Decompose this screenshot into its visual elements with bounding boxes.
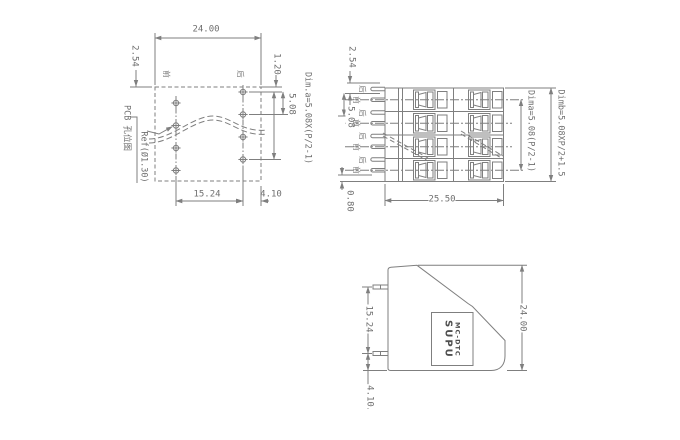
dim-pcb-hole-span: 15.24 bbox=[193, 191, 220, 200]
dim-pcb-edge-to-first-hole: 1.20 bbox=[272, 53, 281, 75]
dim-pcb-dim-a: Dim.a=5.08X(P/2-1) bbox=[303, 72, 312, 164]
brand-logo-line1: SUPU bbox=[443, 320, 454, 359]
dim-pcb-row-offset: 2.54 bbox=[130, 45, 139, 67]
technical-drawing-page: 24.00 2.54 前 后 1.20 5.08 Dim.a=5.08X(P/2… bbox=[0, 0, 680, 440]
pcb-layout-view bbox=[130, 33, 288, 206]
dim-top-body-width: 25.50 bbox=[428, 195, 455, 206]
pin-label-2: 前 bbox=[352, 96, 360, 104]
rear-row-label: 后 bbox=[236, 70, 244, 78]
pin-label-7: 后 bbox=[358, 156, 366, 164]
dim-pcb-edge-margin: 4.10 bbox=[260, 191, 282, 200]
dim-top-pin-offset: 2.54 bbox=[347, 46, 356, 68]
dim-top-dim-b: Dimb=5.08XP/2+1.5 bbox=[556, 90, 565, 177]
dim-top-pin-edge: 0.80 bbox=[345, 190, 354, 212]
brand-logo-line2: MC-DTC bbox=[454, 322, 462, 357]
pcb-layout-title: PCB 孔位图 bbox=[122, 105, 131, 151]
hole-ref-label: Ref(Ø1.30) bbox=[139, 131, 148, 182]
pin-label-8: 前 bbox=[352, 167, 360, 175]
terminal-top-view bbox=[338, 71, 556, 206]
pin-label-4: 前 bbox=[352, 120, 360, 128]
pin-label-1: 后 bbox=[358, 85, 366, 93]
pin-label-3: 后 bbox=[358, 109, 366, 117]
pin-label-6: 前 bbox=[352, 143, 360, 151]
brand-logo-box: SUPU MC-DTC bbox=[431, 312, 473, 366]
dim-side-body-height: 24.00 bbox=[518, 303, 527, 332]
dim-top-dim-a: Dima=5.08(P/2-1) bbox=[526, 90, 535, 172]
dim-pcb-pitch: 5.08 bbox=[287, 93, 296, 115]
dim-pcb-width: 24.00 bbox=[192, 26, 219, 35]
pin-label-5: 后 bbox=[358, 132, 366, 140]
drawing-canvas bbox=[0, 0, 680, 440]
front-row-label: 前 bbox=[162, 70, 170, 78]
dim-side-pin-to-bottom: 4.10 bbox=[365, 384, 374, 408]
dim-side-pin-span: 15.24 bbox=[364, 304, 373, 333]
